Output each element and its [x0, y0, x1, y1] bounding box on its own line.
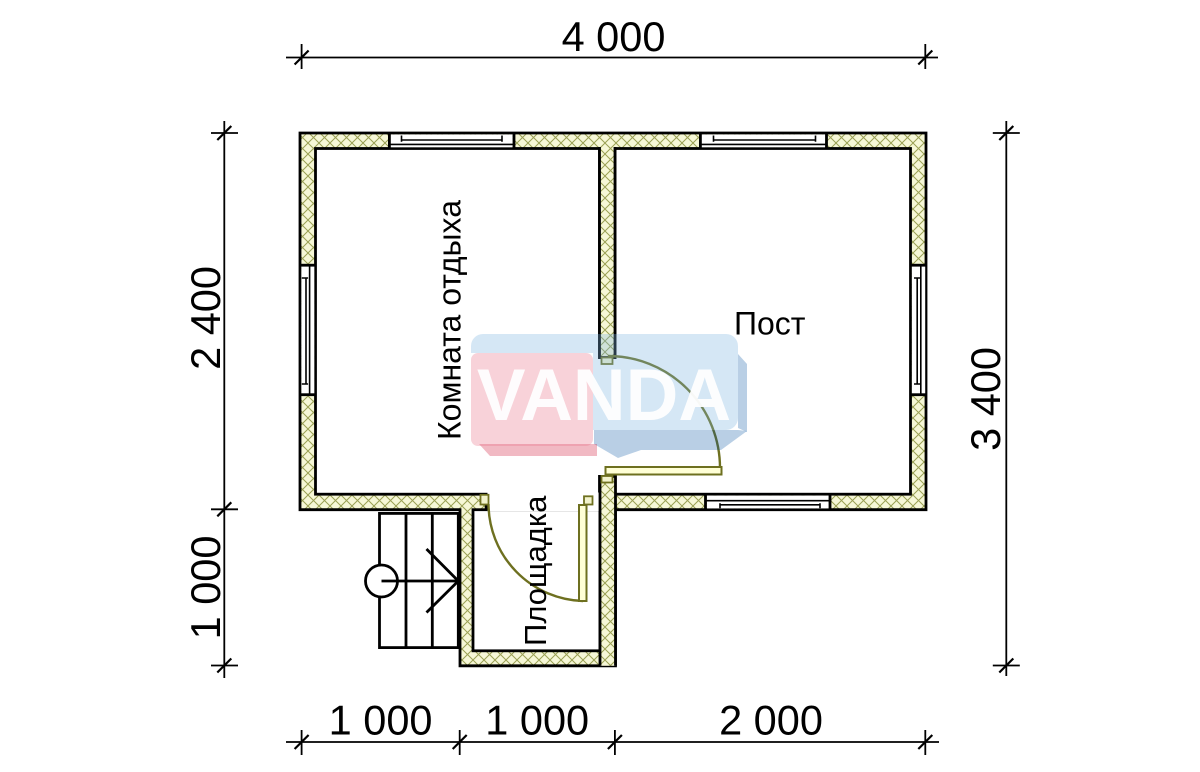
svg-text:1 000: 1 000	[182, 536, 229, 640]
svg-text:Комната отдыха: Комната отдыха	[432, 200, 468, 440]
svg-text:1 000: 1 000	[485, 697, 589, 744]
svg-text:Пост: Пост	[734, 306, 806, 342]
svg-text:1 000: 1 000	[329, 697, 433, 744]
svg-text:4 000: 4 000	[562, 13, 666, 60]
svg-text:2 400: 2 400	[182, 266, 229, 370]
svg-text:3 400: 3 400	[962, 347, 1009, 451]
svg-text:VANDA: VANDA	[477, 355, 731, 436]
svg-text:2 000: 2 000	[719, 697, 823, 744]
svg-text:Площадка: Площадка	[518, 495, 553, 646]
